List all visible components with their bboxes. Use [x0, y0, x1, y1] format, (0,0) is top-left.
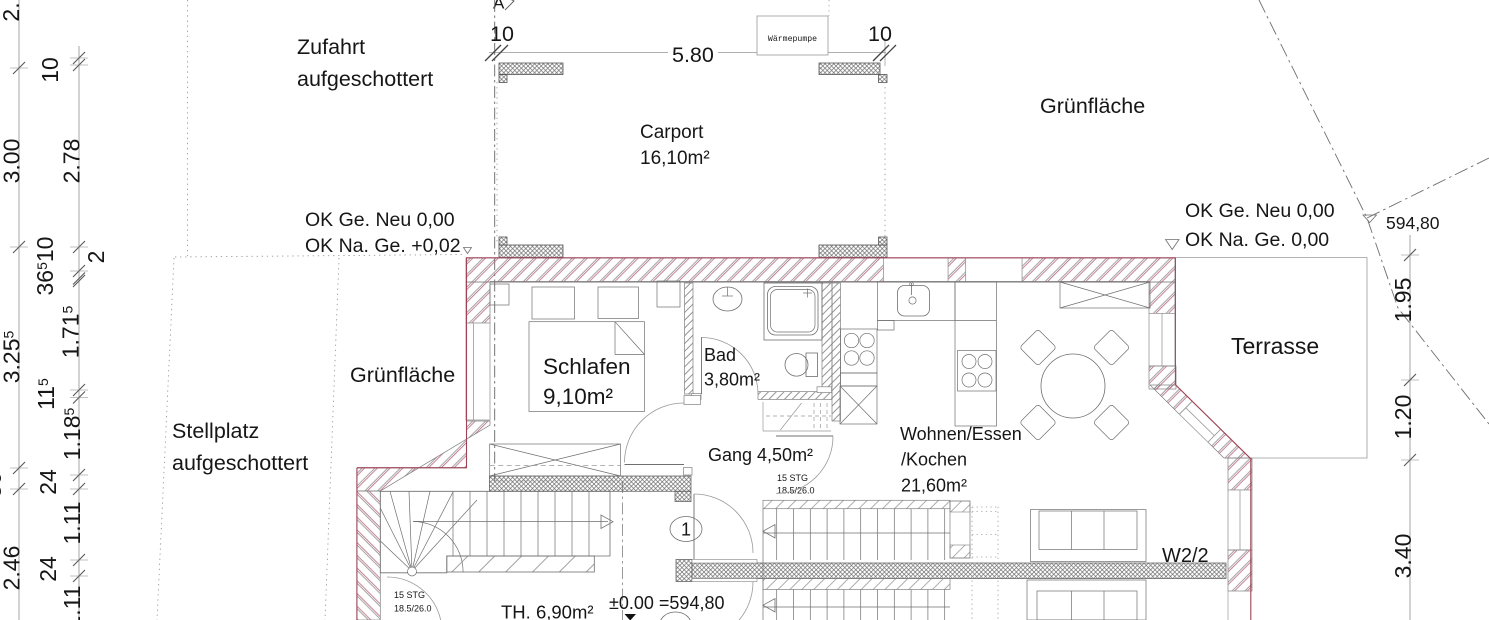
svg-text:OK Ge. Neu 0,00: OK Ge. Neu 0,00 — [1185, 200, 1335, 222]
svg-text:5.80: 5.80 — [672, 43, 714, 67]
svg-text:Schlafen: Schlafen — [543, 354, 631, 379]
svg-text:10: 10 — [37, 57, 63, 83]
svg-text:aufgeschottert: aufgeschottert — [172, 451, 308, 475]
svg-text:24: 24 — [35, 556, 61, 582]
svg-text:3.40: 3.40 — [1390, 534, 1416, 579]
svg-text:1.20: 1.20 — [1390, 395, 1416, 440]
svg-text:3,80m²: 3,80m² — [704, 370, 760, 390]
svg-text:24: 24 — [35, 469, 61, 495]
svg-text:/Kochen: /Kochen — [901, 450, 967, 470]
svg-text:Gang 4,50m²: Gang 4,50m² — [708, 445, 813, 465]
svg-text:Zufahrt: Zufahrt — [297, 35, 365, 59]
svg-text:15 STG: 15 STG — [777, 473, 808, 483]
svg-text:W2/2: W2/2 — [1162, 545, 1209, 567]
svg-text:±0.00 =594,80: ±0.00 =594,80 — [609, 593, 724, 613]
svg-text:OK Na. Ge. 0,00: OK Na. Ge. 0,00 — [1185, 229, 1329, 251]
svg-text:10: 10 — [868, 22, 892, 46]
svg-text:10: 10 — [490, 22, 514, 46]
svg-text:Wärmepumpe: Wärmepumpe — [768, 35, 817, 44]
svg-text:OK Ge. Neu 0,00: OK Ge. Neu 0,00 — [305, 209, 455, 231]
svg-text:Terrasse: Terrasse — [1231, 333, 1319, 359]
svg-text:2.46: 2.46 — [0, 546, 25, 591]
svg-text:18.5/26.0: 18.5/26.0 — [394, 604, 432, 614]
svg-text:594,80: 594,80 — [1386, 213, 1440, 233]
svg-text:Stellplatz: Stellplatz — [172, 419, 259, 443]
svg-text:2: 2 — [83, 251, 109, 264]
svg-text:TH. 6,90m²: TH. 6,90m² — [501, 602, 594, 620]
svg-text:9,10m²: 9,10m² — [543, 384, 614, 409]
svg-text:1.11: 1.11 — [59, 585, 85, 620]
svg-text:OK Na. Ge. +0,02: OK Na. Ge. +0,02 — [305, 235, 461, 257]
svg-text:1.95: 1.95 — [1390, 278, 1416, 323]
svg-text:Carport: Carport — [640, 122, 704, 143]
svg-text:Wohnen/Essen: Wohnen/Essen — [900, 424, 1022, 444]
svg-text:21,60m²: 21,60m² — [901, 476, 967, 496]
svg-text:15 STG: 15 STG — [394, 590, 425, 600]
svg-text:1.11: 1.11 — [59, 501, 85, 544]
svg-text:Bad: Bad — [704, 345, 736, 365]
svg-text:3.00: 3.00 — [0, 139, 25, 184]
svg-text:Grünfläche: Grünfläche — [1040, 94, 1145, 118]
svg-text:1: 1 — [681, 520, 691, 540]
svg-text:2.78: 2.78 — [59, 139, 85, 184]
svg-text:2.: 2. — [0, 2, 24, 21]
svg-text:16,10m²: 16,10m² — [640, 148, 710, 169]
svg-text:aufgeschottert: aufgeschottert — [297, 67, 433, 91]
svg-text:Grünfläche: Grünfläche — [350, 363, 455, 387]
